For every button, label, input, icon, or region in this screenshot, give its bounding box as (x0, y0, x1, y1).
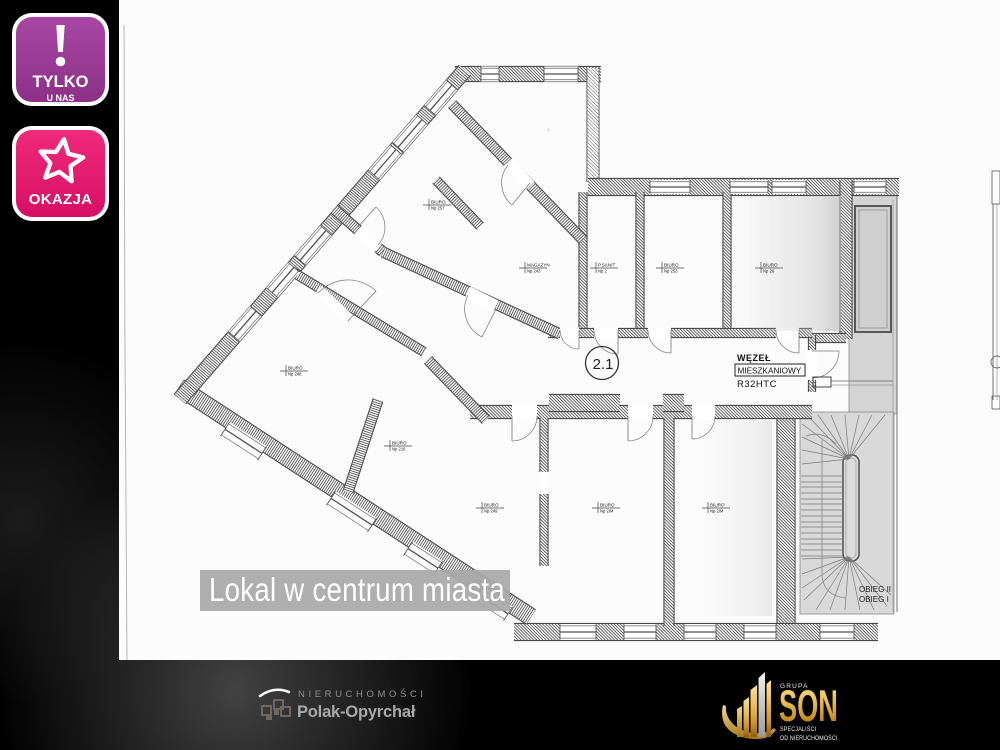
svg-text:SON: SON (779, 681, 838, 730)
svg-text:OD NIERUCHOMOŚCI: OD NIERUCHOMOŚCI (780, 733, 838, 742)
svg-text:SPECJALIŚCI: SPECJALIŚCI (780, 724, 816, 733)
svg-text:NIERUCHOMOŚCI: NIERUCHOMOŚCI (298, 688, 427, 700)
svg-text:Polak-Opyrchał: Polak-Opyrchał (297, 703, 416, 721)
